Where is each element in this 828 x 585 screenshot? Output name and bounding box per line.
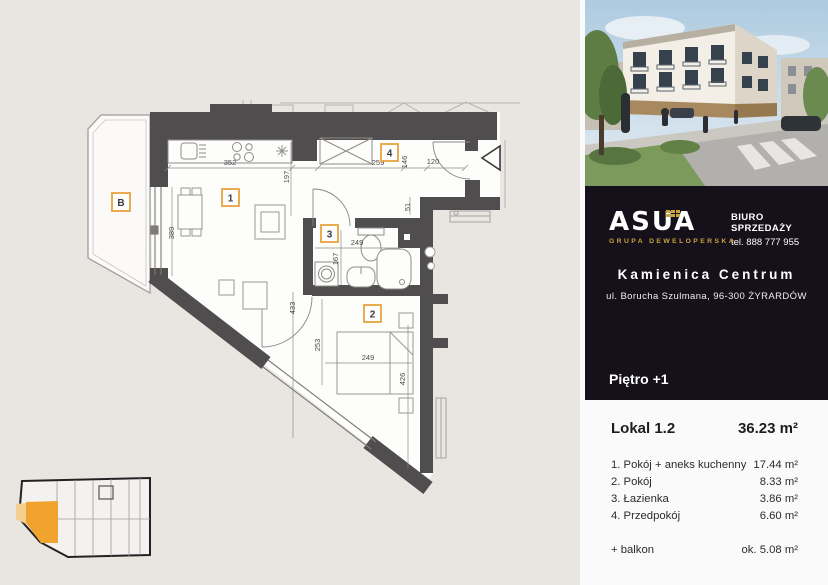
room-label-living: 1: [228, 194, 234, 205]
dim-51: 51: [403, 203, 412, 211]
room-name: 1. Pokój + aneks kuchenny: [611, 457, 746, 474]
balcony-area: ok. 5.08 m²: [741, 544, 798, 556]
floor-plan: 352 259 120 146 51 197 389 433 249 167 2…: [0, 0, 583, 585]
asua-logo-text: ASUA: [609, 209, 721, 235]
locator-unit-highlight: [26, 501, 58, 543]
project-name: Kamienica Centrum: [585, 267, 828, 282]
asua-logo-tagline: GRUPA DEWELOPERSKA: [609, 238, 721, 245]
asua-logo: ASUA GRUPA DEWELOPERSKA: [609, 209, 721, 245]
room-area: 6.60 m²: [760, 508, 798, 525]
floor-label: Piętro +1: [609, 371, 669, 387]
unit-label: Lokal 1.2: [611, 420, 675, 437]
mini-locator-plan: [16, 478, 150, 557]
asua-logo-grid-icon: [666, 210, 680, 217]
room-list-item: 3. Łazienka 3.86 m²: [611, 491, 798, 508]
room-area: 3.86 m²: [760, 491, 798, 508]
nightstand: [399, 398, 413, 413]
chair: [181, 229, 190, 236]
dim-kitchen-width: 352: [224, 158, 237, 167]
room-list-item: 1. Pokój + aneks kuchenny 17.44 m²: [611, 457, 798, 474]
side-table: [219, 280, 234, 295]
room-label-bath: 3: [327, 230, 333, 241]
sales-office-phone: tel. 888 777 955: [731, 237, 818, 248]
room-area: 17.44 m²: [753, 457, 798, 474]
shower-tray: [377, 249, 411, 289]
chair: [192, 229, 201, 236]
dim-bed-width: 249: [362, 353, 375, 362]
locator-balcony-highlight: [16, 503, 26, 524]
dim-entry-width: 120: [427, 157, 440, 166]
unit-details: Lokal 1.2 36.23 m² 1. Pokój + aneks kuch…: [580, 400, 828, 556]
balcony-door-handle: [151, 226, 158, 234]
room-list-item: 4. Przedpokój 6.60 m²: [611, 508, 798, 525]
balcony-name: + balkon: [611, 544, 654, 556]
dim-living-height: 433: [288, 302, 297, 315]
room-name: 3. Łazienka: [611, 491, 669, 508]
info-sidebar: ASUA GRUPA DEWELOPERSKA BIURO SPRZEDAŻY …: [580, 0, 828, 585]
dim-bath-width: 249: [351, 238, 364, 247]
room-label-balcony: B: [117, 198, 124, 209]
unit-area: 36.23 m²: [738, 420, 798, 437]
toilet-tank: [358, 228, 384, 235]
dim-197: 197: [282, 171, 291, 184]
shaft-inner: [404, 234, 410, 240]
chair: [192, 188, 201, 195]
dim-146: 146: [400, 156, 409, 169]
room-list-item: 2. Pokój 8.33 m²: [611, 474, 798, 491]
room-area: 8.33 m²: [760, 474, 798, 491]
dim-bath-height: 167: [331, 253, 340, 266]
sales-office: BIURO SPRZEDAŻY tel. 888 777 955: [731, 209, 818, 248]
tv-cabinet: [243, 282, 267, 309]
armchair-cushion: [261, 212, 279, 232]
project-address: ul. Borucha Szulmana, 96-300 ŻYRARDÓW: [585, 291, 828, 302]
nightstand: [399, 313, 413, 328]
room-label-hall: 4: [387, 149, 393, 160]
radiators: [425, 211, 490, 458]
dining-table: [178, 195, 202, 229]
room-label-bedroom: 2: [370, 310, 376, 321]
flyer-page: 352 259 120 146 51 197 389 433 249 167 2…: [0, 0, 828, 585]
room-list: 1. Pokój + aneks kuchenny 17.44 m² 2. Po…: [611, 457, 798, 525]
sales-office-label: BIURO SPRZEDAŻY: [731, 212, 818, 234]
dim-window-height: 389: [167, 227, 176, 240]
room-name: 4. Przedpokój: [611, 508, 680, 525]
building-photo: [585, 0, 828, 186]
developer-panel: ASUA GRUPA DEWELOPERSKA BIURO SPRZEDAŻY …: [585, 186, 828, 400]
balcony-row: + balkon ok. 5.08 m²: [611, 544, 798, 556]
dim-room2-height: 426: [398, 373, 407, 386]
chair: [181, 188, 190, 195]
dim-bed-offset: 253: [313, 339, 322, 352]
room-name: 2. Pokój: [611, 474, 652, 491]
